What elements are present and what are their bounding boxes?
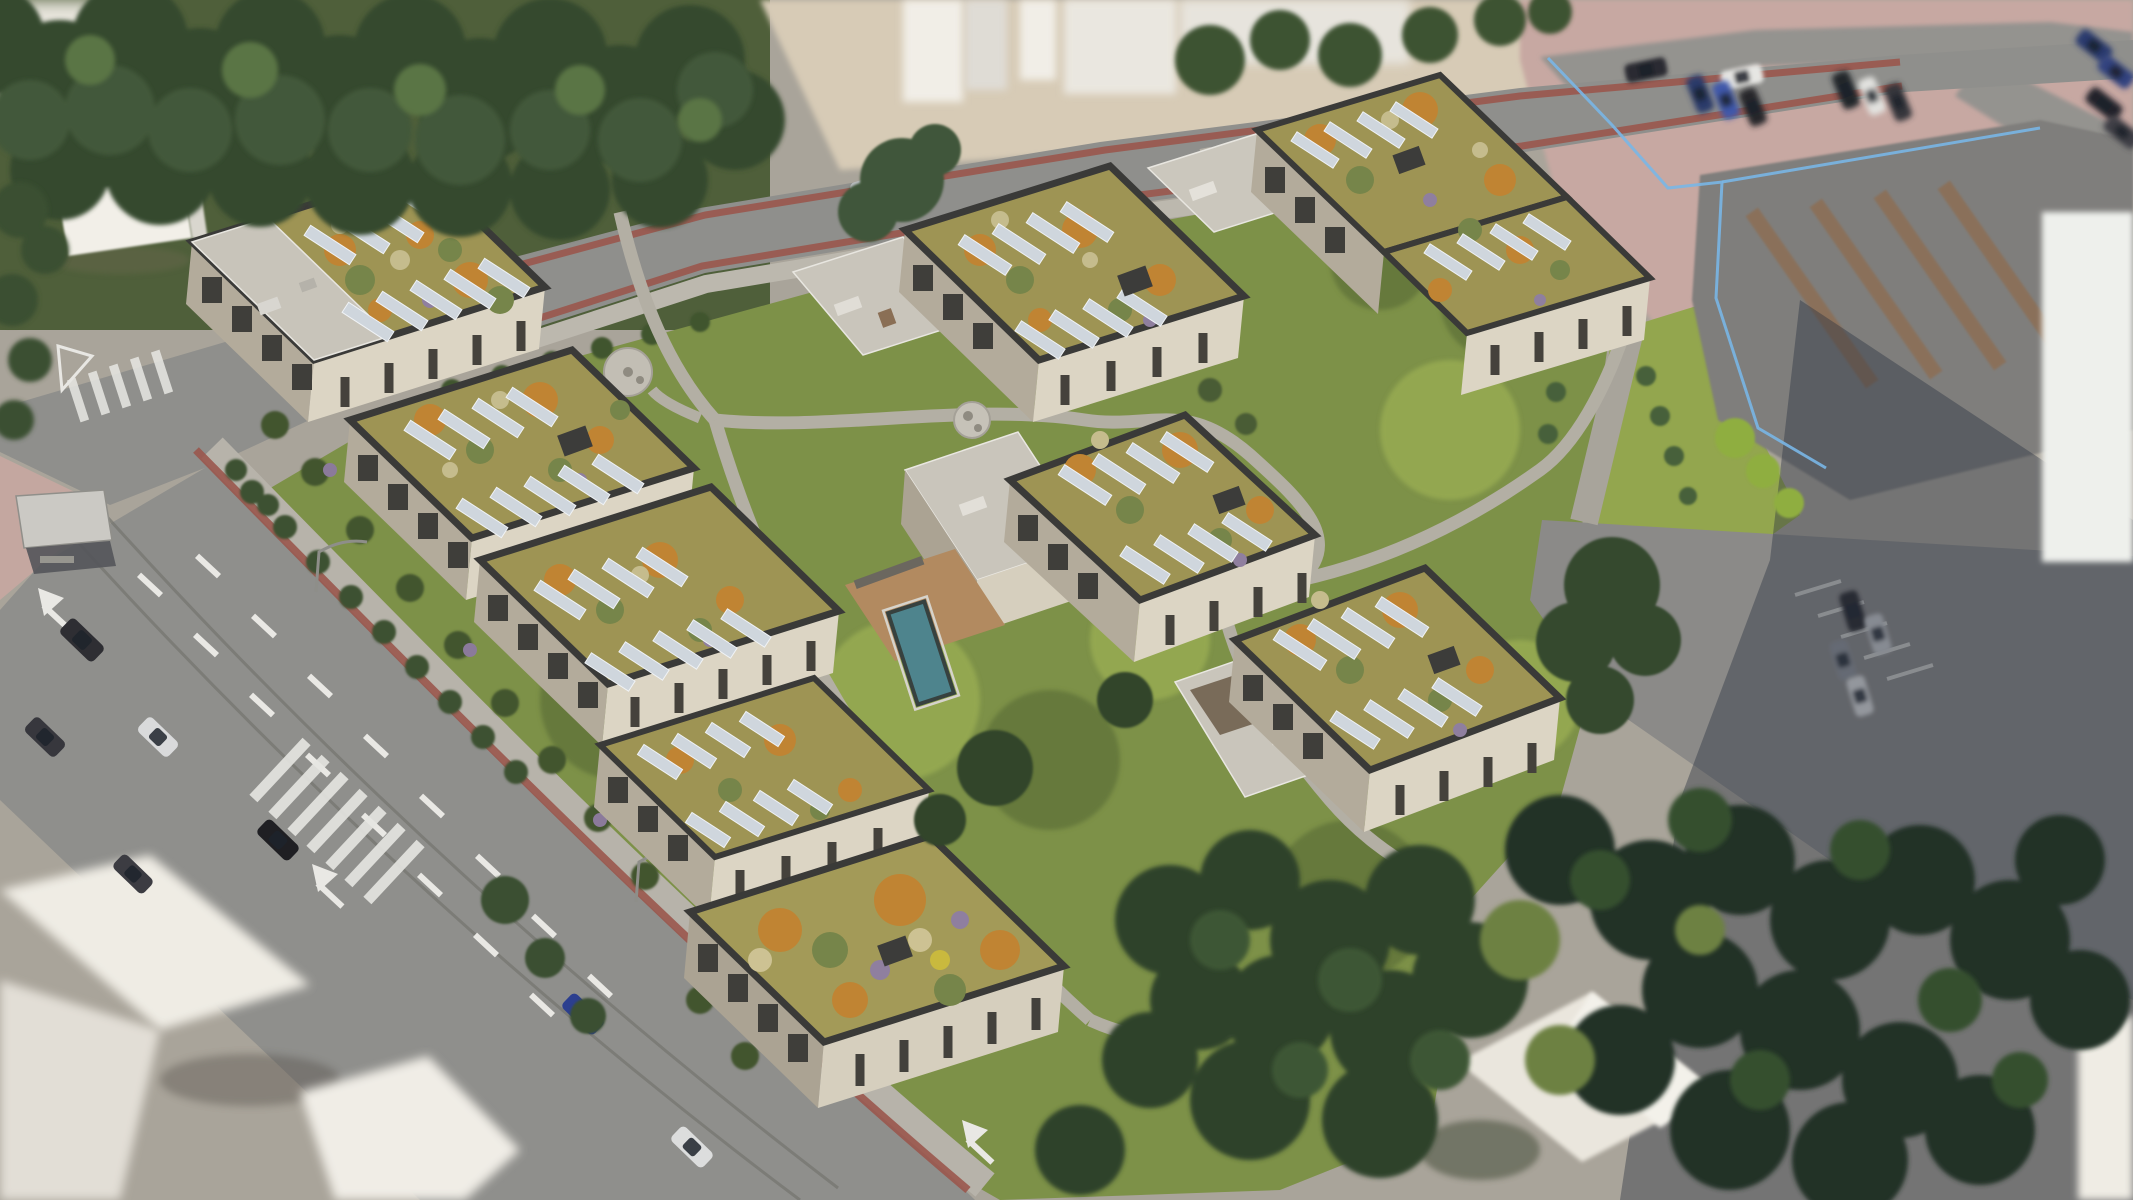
- sedum-orange-item: [832, 982, 868, 1018]
- sedum-yellow: [930, 950, 950, 970]
- balconies-west-item: [668, 835, 688, 861]
- sedum-pale-item: [442, 462, 458, 478]
- windows-south-item: [1623, 306, 1632, 336]
- sedum-pale-item: [390, 250, 410, 270]
- viewport: [0, 0, 2133, 1200]
- garden-beds-north-item: [1198, 378, 1222, 402]
- shrub-rows-right-item: [1664, 446, 1684, 466]
- windows-south-item: [517, 321, 526, 351]
- sedum-purple-item: [1453, 723, 1467, 737]
- windows-south-item: [1153, 347, 1162, 377]
- garden-beds-chain-item: [396, 574, 424, 602]
- shrub-rows-right-item: [1636, 366, 1656, 386]
- trees-top-right-item: [1250, 10, 1310, 70]
- sedum-orange-item: [980, 930, 1020, 970]
- grass-clearings-item: [1525, 1025, 1595, 1095]
- balconies-west-item: [758, 1004, 778, 1032]
- balconies-west-item: [518, 624, 538, 650]
- forest-right-shadowed-item: [2030, 950, 2130, 1050]
- balconies-west-item: [418, 513, 438, 539]
- balconies-west-item: [548, 653, 568, 679]
- trees-east-cluster-item: [1609, 604, 1681, 676]
- flower-accents-item: [323, 463, 337, 477]
- balconies-west-item: [388, 484, 408, 510]
- shrub-rows-right-item: [1546, 382, 1566, 402]
- shrubs-b4-side-item: [481, 876, 529, 924]
- balconies-west-item: [1078, 573, 1098, 599]
- forest-bottom-item: [1102, 1012, 1198, 1108]
- shrub-rows-right-item: [1538, 424, 1558, 444]
- windows-south-item: [473, 335, 482, 365]
- hedge-sidewalk-item: [257, 494, 279, 516]
- windows-south-item: [1528, 743, 1537, 773]
- tree-band-top-light-item: [678, 98, 722, 142]
- hedge-sidewalk-item: [273, 515, 297, 539]
- balconies-west-item: [232, 306, 252, 332]
- balconies-west-item: [943, 294, 963, 320]
- sedum-orange-item: [716, 586, 744, 614]
- windows-south-item: [1491, 345, 1500, 375]
- hedge-sidewalk-item: [471, 725, 495, 749]
- windows-south-item: [719, 669, 728, 699]
- tree-band-top-light-item: [555, 65, 605, 115]
- sedum-orange-item: [838, 778, 862, 802]
- balconies-west-item: [788, 1034, 808, 1062]
- forest-bottom-highlight-item: [1410, 1030, 1470, 1090]
- sedum-pale-item: [1082, 252, 1098, 268]
- sedum-pale-item: [1311, 591, 1329, 609]
- windows-south-item: [1254, 587, 1263, 617]
- forest-bottom-highlight-item: [1190, 910, 1250, 970]
- windows-south-item: [1107, 361, 1116, 391]
- tree-band-top-light-item: [394, 64, 446, 116]
- balconies-west-item: [973, 323, 993, 349]
- balconies-west-item: [638, 806, 658, 832]
- windows-south-item: [763, 655, 772, 685]
- balconies-west-item: [913, 265, 933, 291]
- trees-top-right-item: [1402, 7, 1458, 63]
- sedum-purple: [1453, 723, 1467, 737]
- balconies-west-item: [1295, 197, 1315, 223]
- sedum-pale-item: [1091, 431, 1109, 449]
- scene: [0, 0, 2133, 1200]
- trees-top-right-item: [1318, 23, 1382, 87]
- windows-south-item: [1579, 319, 1588, 349]
- white-tower: [903, 0, 963, 102]
- forest-bottom-highlight-item: [1272, 1042, 1328, 1098]
- forest-right-tops-item: [1570, 850, 1630, 910]
- balconies-west-item: [578, 682, 598, 708]
- hedge-sidewalk-item: [504, 760, 528, 784]
- forest-right-tops-item: [1668, 788, 1732, 852]
- trees-east-cluster-item: [1566, 666, 1634, 734]
- sedum-purple-item: [951, 911, 969, 929]
- sedum-olive-item: [718, 778, 742, 802]
- sedum-purple-item: [1423, 193, 1437, 207]
- sedum-orange-item: [1466, 656, 1494, 684]
- balconies-west-item: [1018, 515, 1038, 541]
- sedum-purple-item: [1534, 294, 1546, 306]
- sedum-pale-item: [908, 928, 932, 952]
- balconies-west-item: [488, 595, 508, 621]
- tree-band-top-light-item: [222, 42, 278, 98]
- windows-south-item: [1396, 785, 1405, 815]
- hedge-sidewalk-item: [339, 585, 363, 609]
- balconies-west-item: [1265, 167, 1285, 193]
- flower-accents-item: [463, 643, 477, 657]
- shrubs-b4-side-item: [570, 998, 606, 1034]
- windows-south-item: [429, 349, 438, 379]
- forest-right-tops-item: [1918, 968, 1982, 1032]
- balconies-west-item: [728, 974, 748, 1002]
- forest-right-shadowed-item: [2015, 815, 2105, 905]
- sedum-olive-item: [934, 974, 966, 1006]
- bright-hedges-item: [1715, 418, 1755, 458]
- grass-clearings-item: [1480, 900, 1560, 980]
- sedum-yellow-item: [930, 950, 950, 970]
- balconies-west-item: [1325, 227, 1345, 253]
- sedum-orange-item: [1484, 164, 1516, 196]
- forest-bottom-highlight-item: [1318, 948, 1382, 1012]
- bus-shelter-bench: [40, 556, 74, 563]
- plaza-rocks-item: [623, 367, 633, 377]
- tree-band-top-mid-item: [598, 98, 682, 182]
- garden-beds-north-item: [1235, 413, 1257, 435]
- shrub-rows-right-item: [1679, 487, 1697, 505]
- windows-south-item: [1032, 998, 1041, 1030]
- forest-right-tops-item: [1992, 1052, 2048, 1108]
- balconies-west-item: [448, 542, 468, 568]
- balconies-west-item: [1303, 733, 1323, 759]
- bright-hedges-item: [1774, 488, 1804, 518]
- sedum-olive-item: [1346, 166, 1374, 194]
- balconies-west-item: [262, 335, 282, 361]
- trees-bottom-center-item: [957, 730, 1033, 806]
- windows-south-item: [631, 697, 640, 727]
- tree-courtyard-north-item: [909, 124, 961, 176]
- windows-south-item: [944, 1026, 953, 1058]
- trees-top-right-item: [1175, 25, 1245, 95]
- windows-south-item: [1484, 757, 1493, 787]
- plaza-rocks-item: [963, 411, 973, 421]
- windows-south-item: [675, 683, 684, 713]
- white-tower: [1020, 0, 1056, 80]
- balconies-west-item: [202, 277, 222, 303]
- forest-right-tops-item: [1730, 1050, 1790, 1110]
- windows-south-item: [1210, 601, 1219, 631]
- garden-beds-chain-item: [261, 411, 289, 439]
- forest-right-tops-item: [1830, 820, 1890, 880]
- sedum-orange-item: [1246, 496, 1274, 524]
- shrubs-b4-side-item: [525, 938, 565, 978]
- sedum-pale-item: [748, 948, 772, 972]
- plaza-rocks-item: [636, 376, 644, 384]
- tree-band-top-light-item: [65, 35, 115, 85]
- sedum-olive-item: [345, 265, 375, 295]
- sedum-olive-item: [438, 238, 462, 262]
- shrub-rows-right-item: [1650, 406, 1670, 426]
- bushes-left-edge-item: [21, 226, 69, 274]
- tree-courtyard-north-item: [838, 182, 898, 242]
- sedum-orange-item: [874, 874, 926, 926]
- plaza-circle: [954, 402, 990, 438]
- hedge-sidewalk-item: [438, 690, 462, 714]
- hedge-sidewalk-item: [225, 459, 247, 481]
- white-house-shadow: [1420, 1120, 1540, 1180]
- sedum-pale-item: [491, 391, 509, 409]
- sedum-olive-item: [1116, 496, 1144, 524]
- windows-south-item: [385, 363, 394, 393]
- windows-south-item: [1535, 332, 1544, 362]
- balconies-west-item: [292, 364, 312, 390]
- windows-south-item: [807, 641, 816, 671]
- sedum-pale: [1091, 431, 1109, 449]
- windows-south-item: [1166, 615, 1175, 645]
- sedum-olive-item: [1550, 260, 1570, 280]
- windows-south-item: [1061, 375, 1070, 405]
- forest-bottom-item: [1035, 1105, 1125, 1195]
- sedum-olive-item: [610, 400, 630, 420]
- sedum-pale: [1311, 591, 1329, 609]
- garden-beds-chain-item: [491, 689, 519, 717]
- tree-band-top-mid-item: [148, 88, 232, 172]
- balconies-west-item: [608, 777, 628, 803]
- sedum-olive-item: [1006, 266, 1034, 294]
- sedum-pale-item: [1472, 142, 1488, 158]
- bright-hedges-item: [1746, 454, 1780, 488]
- white-tower: [965, 0, 1007, 90]
- hedge-sidewalk-item: [405, 655, 429, 679]
- windows-south-item: [856, 1054, 865, 1086]
- balconies-west-item: [358, 455, 378, 481]
- windows-south-item: [341, 377, 350, 407]
- garden-beds-chain-item: [538, 746, 566, 774]
- hedge-sidewalk-item: [372, 620, 396, 644]
- balconies-west-item: [1273, 704, 1293, 730]
- white-building-right-edge: [2042, 212, 2133, 562]
- sedum-olive-item: [1336, 656, 1364, 684]
- sedum-orange-item: [758, 908, 802, 952]
- bus-shelter-canopy: [16, 490, 112, 548]
- windows-south-item: [988, 1012, 997, 1044]
- trees-bottom-center-item: [1097, 672, 1153, 728]
- trees-bottom-center-item: [914, 794, 966, 846]
- windows-south-item: [900, 1040, 909, 1072]
- sedum-olive-item: [812, 932, 848, 968]
- grass-clearings-item: [1675, 905, 1725, 955]
- sedum-orange-item: [1428, 278, 1452, 302]
- bushes-left-edge-item: [8, 338, 52, 382]
- plaza-rocks-item: [974, 424, 982, 432]
- windows-south-item: [1440, 771, 1449, 801]
- windows-south-item: [1199, 333, 1208, 363]
- balconies-west-item: [698, 944, 718, 972]
- white-tower: [1064, 0, 1176, 94]
- verge-hedge-top-item: [690, 312, 710, 332]
- windows-south-item: [1298, 573, 1307, 603]
- balconies-west-item: [1243, 675, 1263, 701]
- balconies-west-item: [1048, 544, 1068, 570]
